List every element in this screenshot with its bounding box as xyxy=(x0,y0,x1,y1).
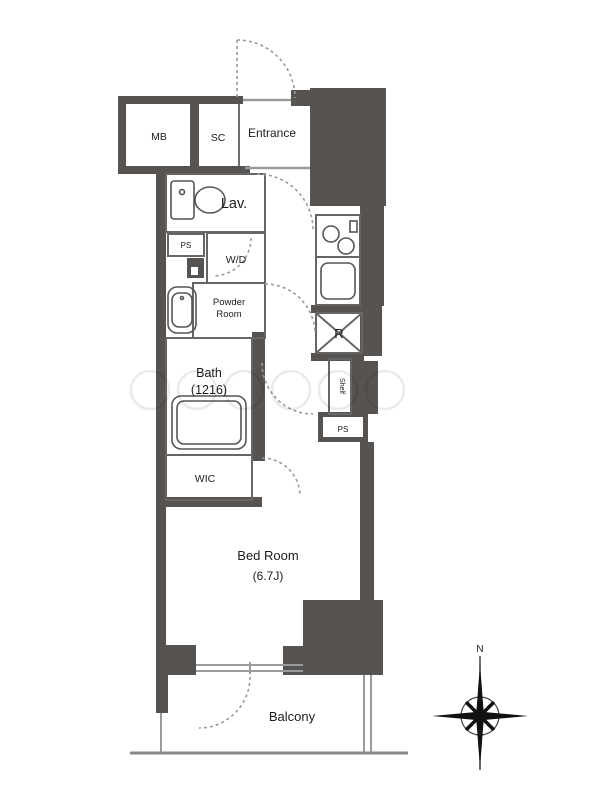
north-label: N xyxy=(476,644,483,655)
room-label-ps-lower: PS xyxy=(338,425,349,434)
wall-below-wic xyxy=(156,497,262,507)
room-label-shelf: Shelf xyxy=(338,378,345,394)
room-label-fridge: R xyxy=(334,326,343,341)
toilet-icon xyxy=(171,181,225,219)
wall-right-kitchen xyxy=(360,206,384,306)
room-label-entrance: Entrance xyxy=(248,126,296,140)
washbasin-icon xyxy=(168,287,196,333)
room-label-sc: SC xyxy=(211,132,226,144)
wall-top xyxy=(118,96,243,104)
wall-mb-left xyxy=(118,96,126,174)
room-label-bedroom-1: Bed Room xyxy=(237,548,298,563)
room-label-mb: MB xyxy=(151,131,167,143)
compass-rose: N xyxy=(432,644,528,770)
sink-icon xyxy=(321,263,355,299)
wall-mb-bottom xyxy=(118,166,250,174)
floor-plan-drawing: MB SC Entrance Lav. PS W/D Powder Room B… xyxy=(0,0,600,800)
room-label-balcony: Balcony xyxy=(269,709,316,724)
wall-balcony-left-chunk xyxy=(156,645,196,675)
room-label-bath-1: Bath xyxy=(196,366,222,380)
wall-block-top-right xyxy=(310,88,386,206)
door-swing-powder xyxy=(265,284,315,334)
water-heater-slot xyxy=(191,267,198,275)
compass-points xyxy=(432,664,528,768)
door-swing-wic xyxy=(262,458,300,496)
room-label-wd: W/D xyxy=(226,254,247,266)
room-label-wic: WIC xyxy=(195,473,216,485)
wall-ps-left xyxy=(318,412,323,442)
balcony-structure xyxy=(161,662,371,753)
room-label-bath-2: (1216) xyxy=(191,383,227,397)
door-swing-balcony xyxy=(199,677,250,728)
room-label-ps-upper: PS xyxy=(181,241,192,250)
room-label-lav: Lav. xyxy=(221,196,247,212)
wall-right-bedroom xyxy=(360,442,374,604)
wall-right-fridge xyxy=(360,306,382,356)
room-label-bedroom-2: (6.7J) xyxy=(253,569,284,583)
door-swing-entrance xyxy=(237,40,295,98)
room-label-powder-2: Room xyxy=(216,309,241,320)
kitchen-counter xyxy=(316,215,360,305)
wall-ps-right xyxy=(363,412,368,442)
room-label-powder-1: Powder xyxy=(213,297,245,308)
lav-room xyxy=(166,174,265,232)
wall-block-bottom-right xyxy=(303,600,383,647)
wall-above-fridge xyxy=(311,305,364,313)
floor-plan-page: MB SC Entrance Lav. PS W/D Powder Room B… xyxy=(0,0,600,800)
wall-balcony-left-strip xyxy=(156,675,168,713)
wall-ps-bottom xyxy=(318,437,368,442)
wall-mb-sc-divider xyxy=(190,104,199,166)
stove-icon xyxy=(323,221,357,254)
